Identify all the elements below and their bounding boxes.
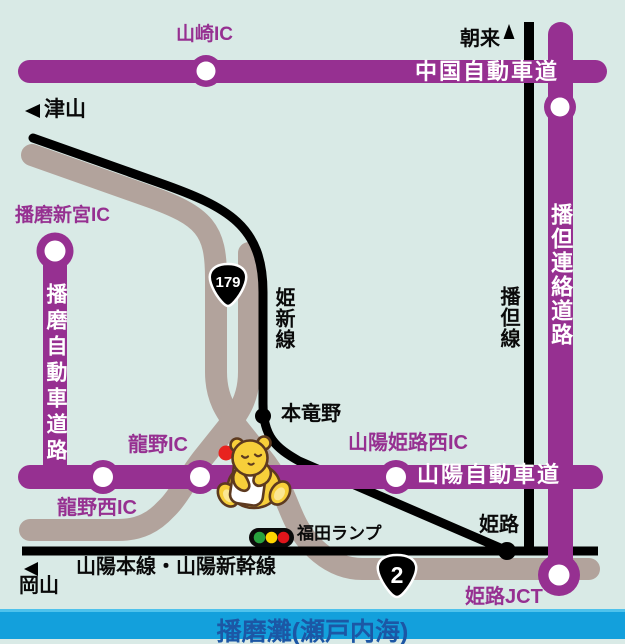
tatsuno-ic-label: 龍野IC — [128, 435, 188, 456]
route2-badge-number: 2 — [377, 562, 417, 589]
sanyo-himeji-nishi-ic-label: 山陽姫路西IC — [348, 433, 468, 454]
bantan-junction-marker — [544, 91, 576, 123]
hontatsuno-station-label: 本竜野 — [281, 404, 341, 425]
himeji-station-label: 姫路 — [479, 515, 519, 536]
harima-shingu-ic-label: 播磨新宮IC — [15, 206, 110, 226]
okayama-direction-label: 岡山 — [19, 576, 59, 597]
traffic-signal-icon — [249, 528, 294, 547]
yamazaki-ic-label: 山崎IC — [176, 25, 233, 45]
kishin-line-label: 姫新線 — [272, 287, 293, 350]
route179-badge-number: 179 — [203, 274, 253, 291]
bantan-line-label: 播但線 — [497, 286, 518, 349]
himeji-station-dot — [498, 542, 516, 560]
sanyo-main-line-label: 山陽本線・山陽新幹線 — [76, 557, 276, 578]
tsuyama-left-arrow-icon — [25, 104, 40, 118]
yamazaki-ic-marker — [190, 55, 222, 87]
asago-up-arrow-icon — [504, 24, 515, 39]
harima-shingu-ic-marker — [37, 233, 74, 270]
fukuda-ramp-label: 福田ランプ — [297, 525, 382, 543]
sanyo-expressway-label: 山陽自動車道 — [417, 463, 561, 486]
tsuyama-direction-label: 津山 — [44, 99, 86, 121]
asago-direction-label: 朝来 — [460, 29, 500, 50]
bantan-renraku-road-label: 播但連絡道路 — [549, 203, 572, 347]
sea-label: 播磨灘(瀬戸内海) — [0, 612, 625, 644]
hontatsuno-station-dot — [255, 408, 271, 424]
map-artwork — [0, 0, 625, 644]
sanyo-himeji-nishi-ic-marker — [379, 460, 413, 494]
tatsuno-nishi-ic-label: 龍野西IC — [57, 498, 137, 519]
himeji-jct-marker — [538, 554, 580, 596]
chugoku-expressway-label: 中国自動車道 — [415, 60, 559, 83]
access-road-map: 山崎IC 朝来 中国自動車道 津山 播磨新宮IC 播磨自動車道路 播但連絡道路 … — [0, 0, 625, 644]
himeji-jct-label: 姫路JCT — [465, 587, 543, 608]
tatsuno-ic-marker — [183, 460, 217, 494]
okayama-left-arrow-icon — [24, 562, 38, 576]
harima-expressway-label: 播磨自動車道路 — [44, 283, 66, 465]
tatsuno-nishi-ic-marker — [86, 460, 120, 494]
